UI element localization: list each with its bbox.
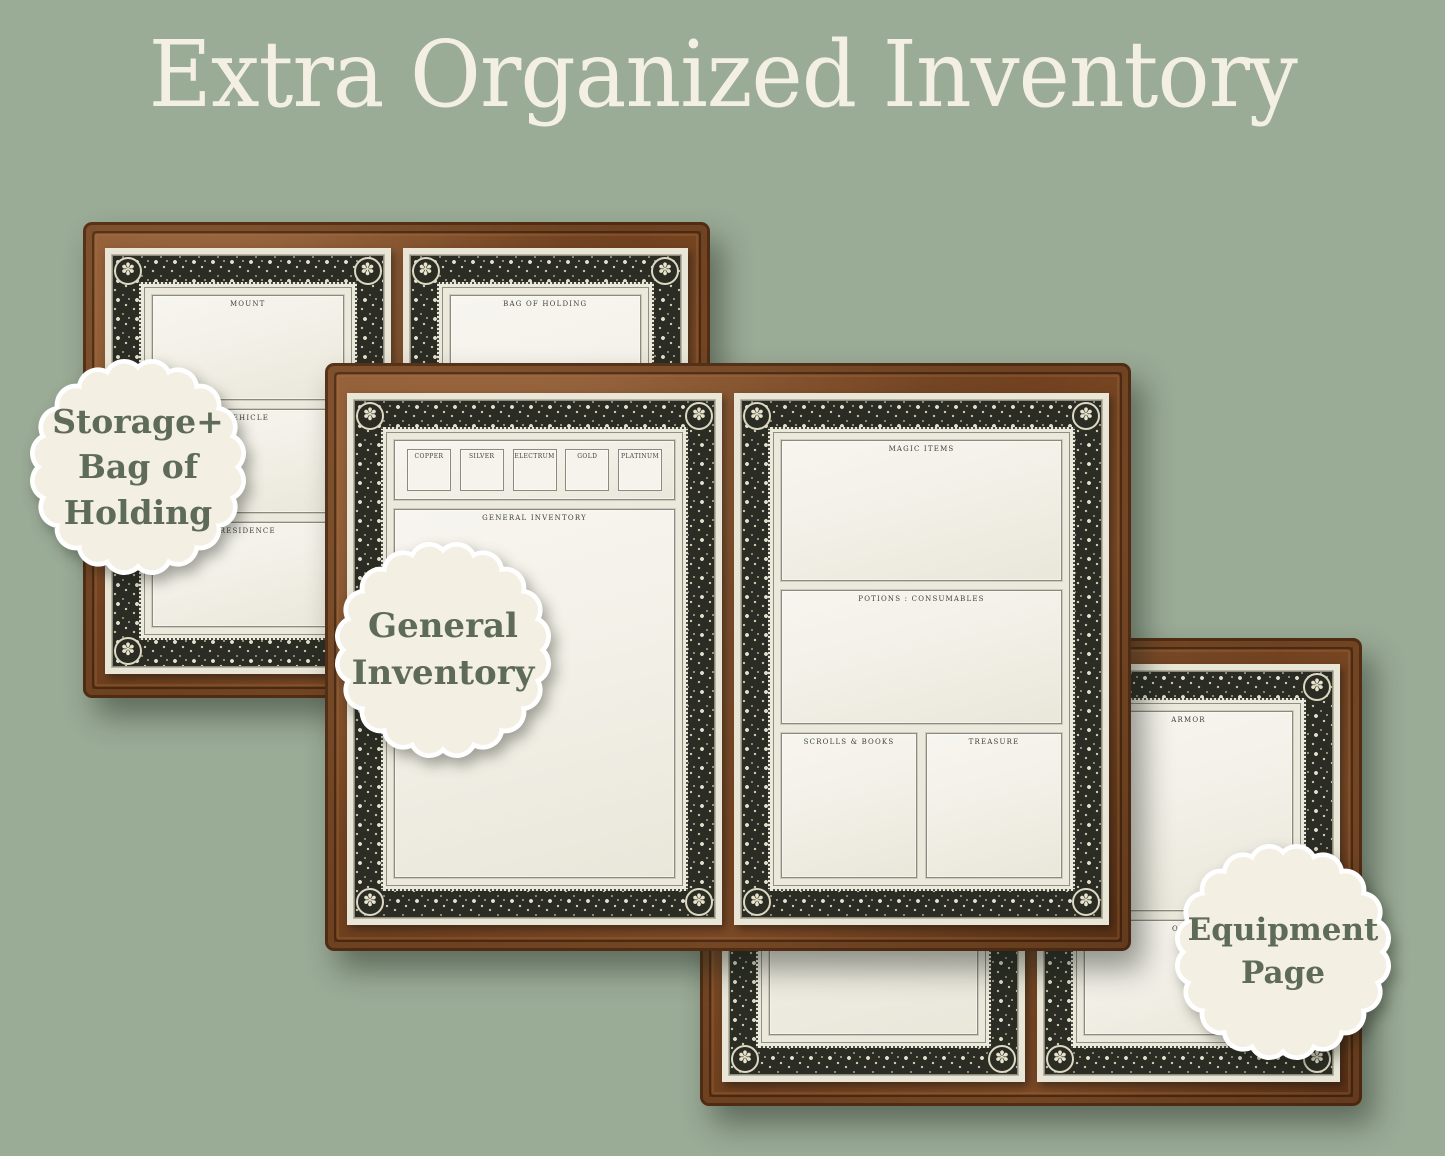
rosette-icon: ✽: [731, 1045, 759, 1073]
bottom-row: SCROLLS & BOOKS TREASURE: [781, 733, 1062, 878]
badge-line: Inventory: [352, 650, 535, 697]
rosette-icon: ✽: [1072, 402, 1100, 430]
section-label: BAG OF HOLDING: [451, 300, 641, 308]
rosette-icon: ✽: [1303, 673, 1331, 701]
rosette-icon: ✽: [412, 257, 440, 285]
rosette-icon: ✽: [651, 257, 679, 285]
badge-label: Storage+ Bag of Holding: [23, 352, 253, 582]
badge-general-inventory: General Inventory: [328, 535, 558, 765]
rosette-icon: ✽: [356, 888, 384, 916]
badge-line: General: [368, 603, 518, 650]
section-label: MOUNT: [153, 300, 343, 308]
electrum-coin-box: ELECTRUM: [513, 449, 557, 491]
badge-label: Equipment Page: [1168, 837, 1398, 1067]
gold-coin-box: GOLD: [565, 449, 609, 491]
section-label: POTIONS : CONSUMABLES: [782, 595, 1061, 603]
section-label: TREASURE: [927, 738, 1061, 746]
badge-line: Storage+: [52, 399, 224, 445]
general-right-page: ✽ ✽ ✽ ✽ MAGIC ITEMS POTIONS : CONSUMABLE…: [734, 393, 1109, 925]
rosette-icon: ✽: [743, 888, 771, 916]
page-content: MAGIC ITEMS POTIONS : CONSUMABLES SCROLL…: [768, 427, 1075, 891]
rosette-icon: ✽: [354, 257, 382, 285]
badge-line: Page: [1241, 952, 1325, 995]
section-label: GENERAL INVENTORY: [395, 514, 674, 522]
rosette-icon: ✽: [1046, 1045, 1074, 1073]
rosette-icon: ✽: [356, 402, 384, 430]
rosette-icon: ✽: [1072, 888, 1100, 916]
potions-consumables-section: POTIONS : CONSUMABLES: [781, 590, 1062, 724]
rosette-icon: ✽: [988, 1045, 1016, 1073]
platinum-coin-box: PLATINUM: [618, 449, 662, 491]
treasure-section: TREASURE: [926, 733, 1062, 878]
ornate-border: ✽ ✽ ✽ ✽ MAGIC ITEMS POTIONS : CONSUMABLE…: [741, 400, 1102, 918]
coin-strip: COPPER SILVER ELECTRUM GOLD PLATINUM: [394, 440, 675, 500]
badge-storage-bag-of-holding: Storage+ Bag of Holding: [23, 352, 253, 582]
section-label: SCROLLS & BOOKS: [782, 738, 916, 746]
rosette-icon: ✽: [685, 888, 713, 916]
rosette-icon: ✽: [114, 637, 142, 665]
product-image-canvas: Extra Organized Inventory ✽ ✽ ✽ ✽ MOUNT …: [0, 0, 1445, 1156]
scrolls-books-section: SCROLLS & BOOKS: [781, 733, 917, 878]
page-title-text: Extra Organized Inventory: [148, 24, 1296, 125]
page-title: Extra Organized Inventory: [0, 24, 1445, 125]
badge-label: General Inventory: [328, 535, 558, 765]
rosette-icon: ✽: [685, 402, 713, 430]
badge-equipment-page: Equipment Page: [1168, 837, 1398, 1067]
badge-line: Holding: [64, 490, 212, 536]
rosette-icon: ✽: [743, 402, 771, 430]
section-label: MAGIC ITEMS: [782, 445, 1061, 453]
rosette-icon: ✽: [114, 257, 142, 285]
badge-line: Bag of: [78, 444, 198, 490]
magic-items-section: MAGIC ITEMS: [781, 440, 1062, 581]
copper-coin-box: COPPER: [407, 449, 451, 491]
silver-coin-box: SILVER: [460, 449, 504, 491]
badge-line: Equipment: [1188, 909, 1379, 952]
